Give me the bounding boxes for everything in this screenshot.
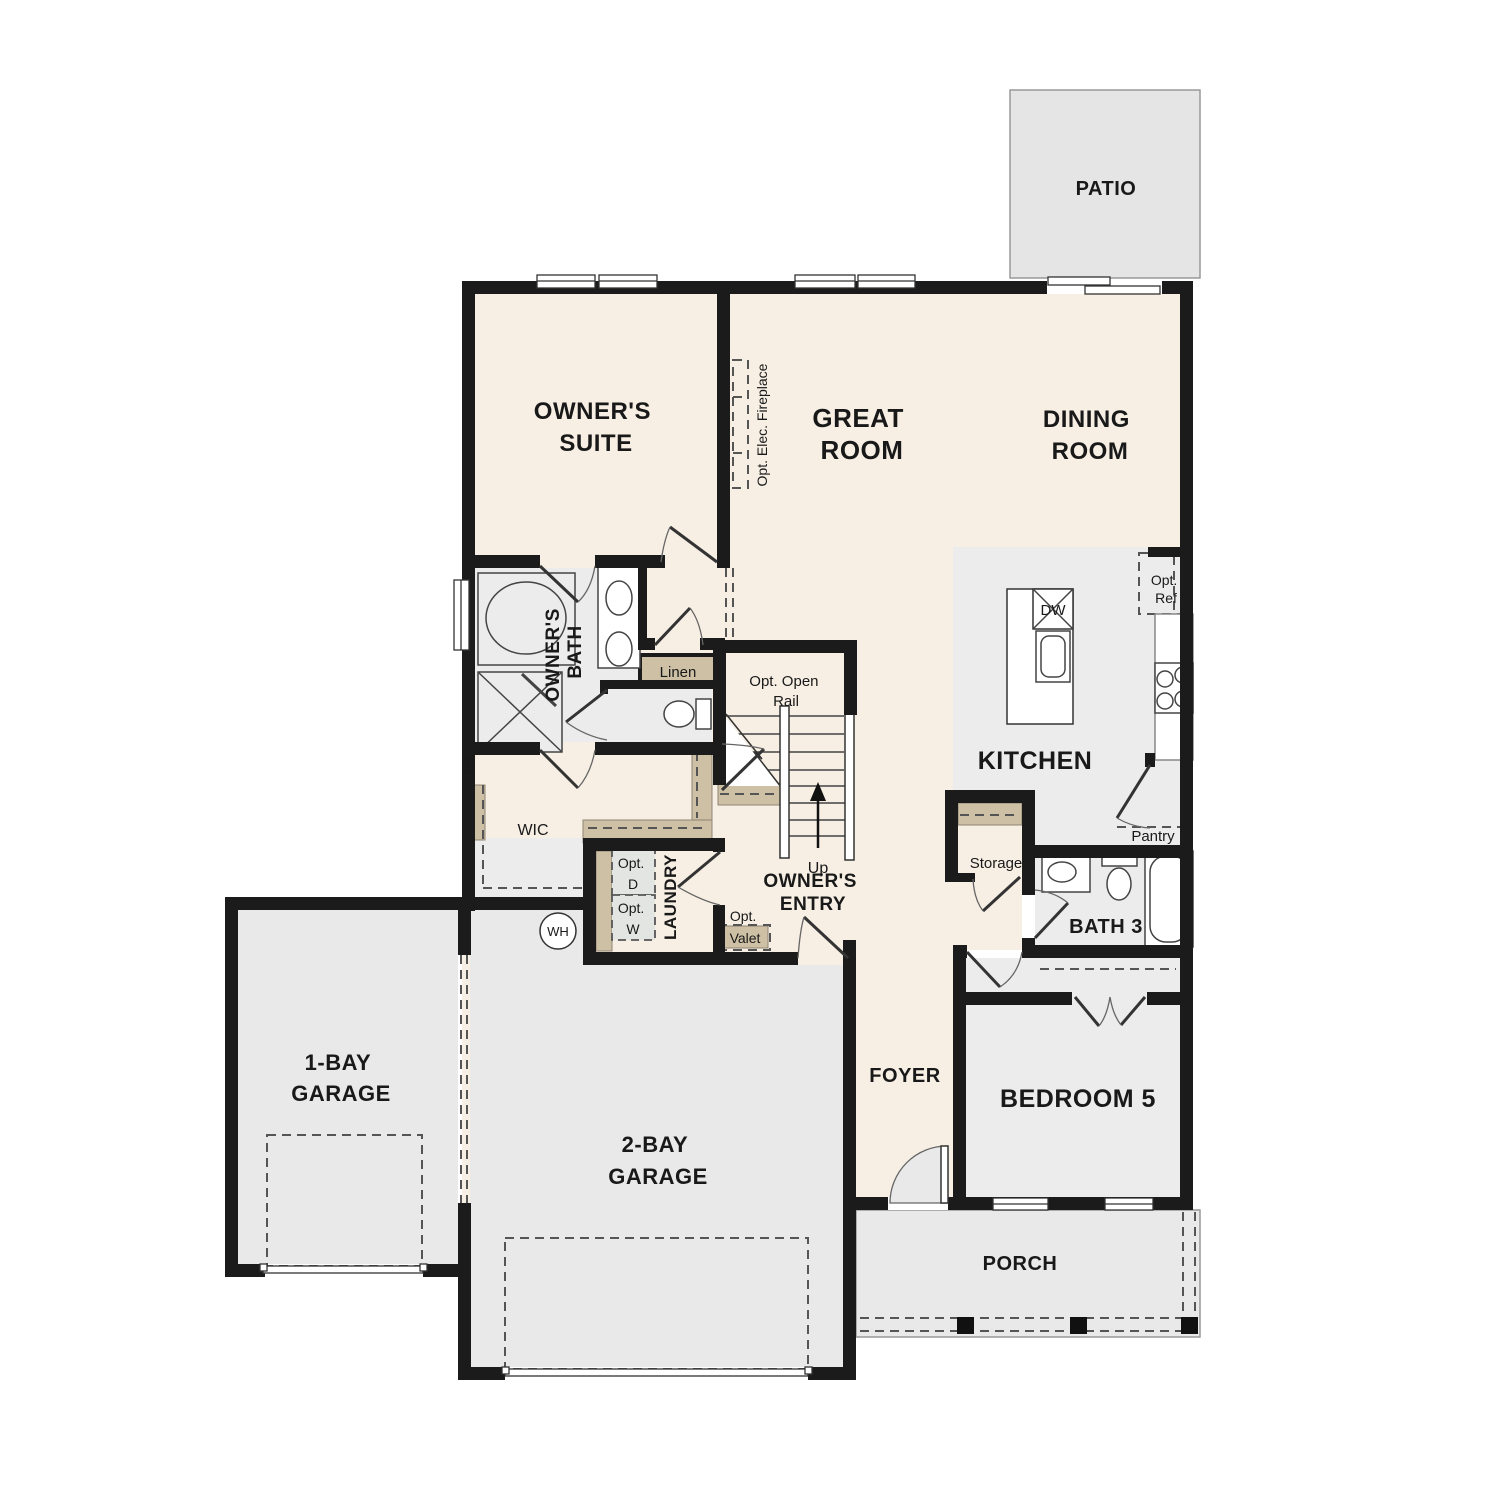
room-label-storage: Storage — [970, 855, 1023, 872]
label-dishwasher: DW — [1041, 602, 1067, 619]
stair-rail-outer — [845, 713, 854, 860]
garage2-floor-left — [470, 910, 583, 1367]
window-owners-suite-1 — [537, 275, 595, 288]
bath3-toilet-bowl — [1107, 868, 1131, 900]
double-vanity-fixture — [598, 567, 640, 668]
porch-post — [1070, 1317, 1087, 1334]
room-label-bath3: BATH 3 — [1069, 916, 1143, 938]
window-great-room-2 — [858, 275, 915, 288]
room-label-wic: WIC — [517, 822, 548, 839]
room-label-porch: PORCH — [983, 1253, 1058, 1275]
porch-post — [957, 1317, 974, 1334]
window-great-room-1 — [795, 275, 855, 288]
room-label-patio: PATIO — [1076, 178, 1137, 200]
bath3-vanity — [1042, 853, 1090, 892]
window-owners-suite-2 — [599, 275, 657, 288]
floor-plan-page: PATIO OWNER'S SUITE GREAT ROOM DINING RO… — [0, 0, 1500, 1500]
room-label-foyer: FOYER — [869, 1065, 940, 1087]
room-label-laundry: LAUNDRY — [661, 854, 680, 940]
window-bedroom5-1 — [993, 1198, 1048, 1210]
stair-rail-inner — [780, 706, 789, 858]
window-owners-bath — [454, 580, 469, 650]
label-water-heater: WH — [547, 924, 569, 939]
label-linen: Linen — [660, 664, 697, 681]
room-label-kitchen: KITCHEN — [978, 747, 1093, 775]
label-opt-elec-fireplace: Opt. Elec. Fireplace — [754, 363, 770, 486]
label-lin: Lin — [463, 758, 477, 774]
wic-shelf-right — [692, 750, 712, 820]
laundry-shelf — [596, 851, 612, 951]
room-label-bedroom5: BEDROOM 5 — [1000, 1085, 1156, 1113]
toilet-fixture-owners — [664, 699, 711, 729]
floor-plan: PATIO OWNER'S SUITE GREAT ROOM DINING RO… — [0, 0, 1500, 1500]
window-bedroom5-2 — [1105, 1198, 1153, 1210]
porch-post — [1181, 1317, 1198, 1334]
room-label-pantry: Pantry — [1131, 828, 1175, 845]
